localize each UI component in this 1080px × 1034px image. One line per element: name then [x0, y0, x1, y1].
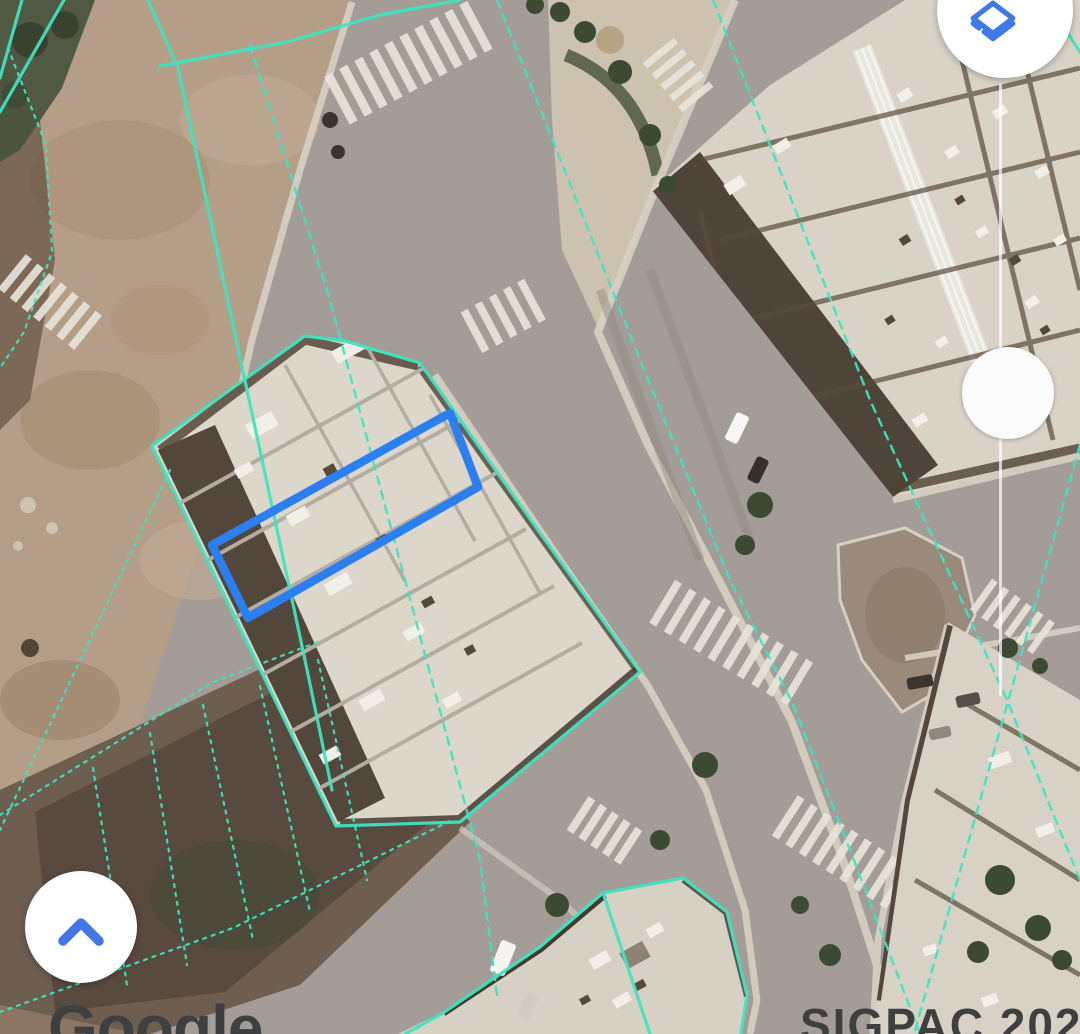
- map-view[interactable]: Google SIGPAC 2020: [0, 0, 1080, 1034]
- google-watermark: Google: [48, 996, 262, 1034]
- opacity-slider-thumb[interactable]: [962, 347, 1054, 439]
- layers-icon: [968, 0, 1018, 48]
- collapse-button[interactable]: [25, 871, 137, 983]
- chevron-up-icon: [25, 871, 137, 983]
- imagery-credit-watermark: SIGPAC 2020: [800, 1002, 1080, 1034]
- satellite-imagery: [0, 0, 1080, 1034]
